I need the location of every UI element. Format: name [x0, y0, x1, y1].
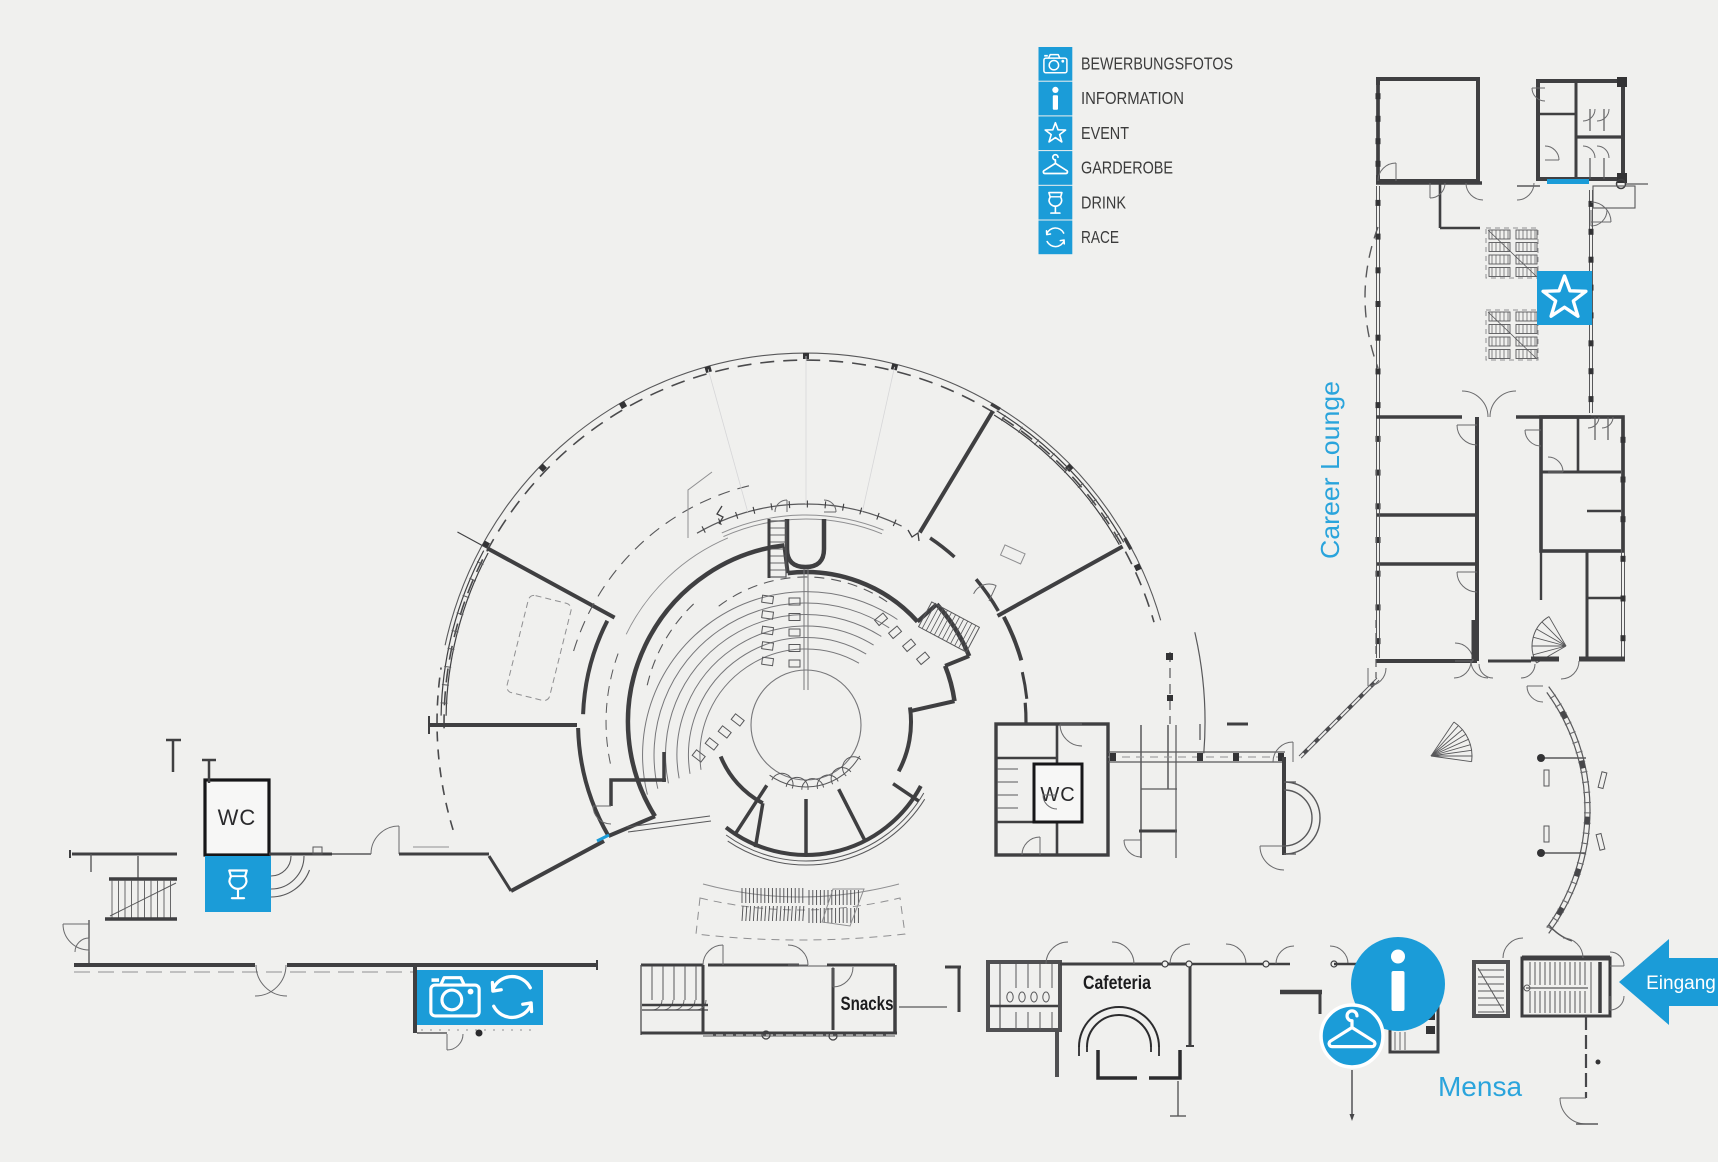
svg-text:Eingang: Eingang	[1646, 973, 1716, 994]
svg-text:INFORMATION: INFORMATION	[1081, 88, 1184, 108]
svg-text:DRINK: DRINK	[1081, 192, 1126, 212]
svg-text:Mensa: Mensa	[1438, 1071, 1522, 1102]
svg-text:RACE: RACE	[1081, 227, 1119, 247]
svg-text:WC: WC	[218, 805, 257, 830]
svg-text:Snacks: Snacks	[841, 993, 894, 1015]
svg-text:BEWERBUNGSFOTOS: BEWERBUNGSFOTOS	[1081, 54, 1233, 74]
svg-text:Career Lounge: Career Lounge	[1315, 381, 1345, 559]
svg-text:EVENT: EVENT	[1081, 123, 1129, 143]
svg-text:GARDEROBE: GARDEROBE	[1081, 158, 1173, 178]
svg-text:Cafeteria: Cafeteria	[1083, 972, 1151, 994]
